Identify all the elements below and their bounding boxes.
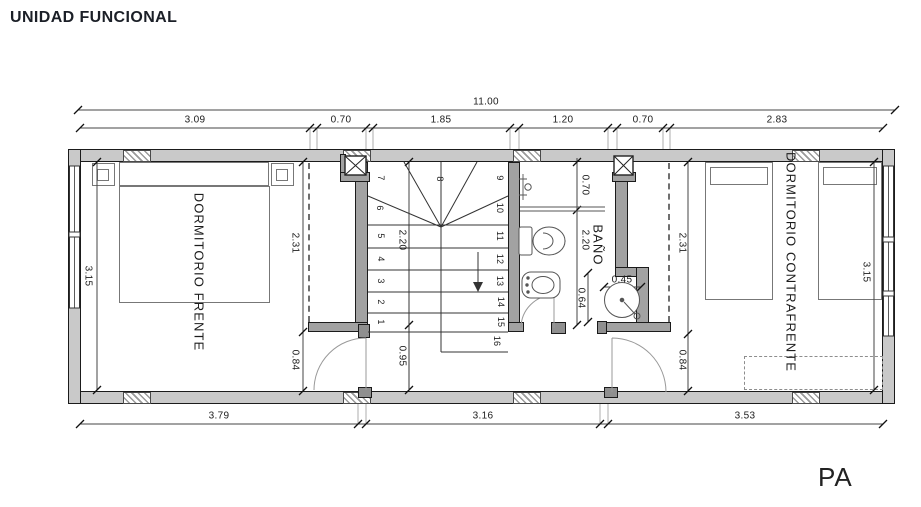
shower: [519, 174, 605, 211]
dim-front-closet: 2.31: [290, 233, 301, 254]
wall-exterior-left: [68, 149, 81, 404]
wall-hatch: [513, 150, 541, 162]
stair-step-number: 10: [495, 203, 505, 214]
dim-top-segment: 1.20: [553, 115, 574, 126]
dim-top-segment: 1.85: [431, 115, 452, 126]
wall-bath-west: [508, 162, 520, 332]
wall-vanity-east: [636, 267, 649, 324]
round-sink: [605, 283, 641, 320]
dim-sink-diameter: 0.45: [612, 275, 633, 286]
stair-step-number: 8: [435, 176, 445, 181]
stair-step-number: 12: [495, 254, 505, 265]
wall-hatch: [123, 392, 151, 404]
closet-front-line: [308, 163, 310, 322]
stair-direction-arrow: [473, 252, 483, 292]
dim-top-segment: 2.83: [767, 115, 788, 126]
closet-outline: [744, 356, 883, 390]
wall-bath-south: [508, 322, 524, 332]
dim-top-segment: 0.70: [633, 115, 654, 126]
door-stop: [358, 387, 372, 398]
stair-step-number: 14: [496, 297, 506, 308]
room-label-bathroom: BAÑO: [591, 224, 606, 265]
nightstand-detail: [97, 169, 109, 181]
stair-step-number: 6: [375, 205, 385, 210]
bed-pillow: [823, 167, 877, 185]
stair-treads: [368, 162, 508, 390]
dim-top-segment: 3.09: [185, 115, 206, 126]
toilet: [519, 227, 566, 255]
stair-step-number: 13: [495, 276, 505, 287]
stair-step-number: 3: [376, 278, 386, 283]
wall-exterior-bottom: [68, 391, 895, 404]
stair-step-number: 2: [376, 299, 386, 304]
closet-front-line: [668, 163, 670, 322]
stair-step-number: 4: [376, 256, 386, 261]
dim-stair-run: 2.20: [397, 230, 408, 251]
door-jamb: [597, 321, 607, 334]
dim-bottom-segment: 3.16: [473, 411, 494, 422]
dim-left-height: 3.15: [83, 266, 94, 287]
dim-right-height: 3.15: [861, 262, 872, 283]
dim-front-door-zone: 0.84: [290, 350, 301, 371]
bed-pillow: [710, 167, 768, 185]
door-jamb: [551, 322, 566, 334]
wall-hatch: [792, 392, 820, 404]
dim-overall-width: 11.00: [473, 97, 499, 108]
door-hinge-block: [604, 387, 618, 398]
stair-step-number: 16: [492, 336, 502, 347]
room-label-back-bedroom: DORMITORIO CONTRAFRENTE: [784, 152, 799, 372]
wall-duct-bottom: [340, 172, 370, 182]
dim-bath-length: 2.20: [580, 230, 591, 251]
room-label-front-bedroom: DORMITORIO FRENTE: [192, 193, 207, 352]
stair-step-number: 15: [496, 317, 506, 328]
dim-landing: 0.95: [397, 346, 408, 367]
stair-step-number: 5: [376, 233, 386, 238]
wall-hatch: [123, 150, 151, 162]
door-jamb: [358, 324, 370, 338]
wall-hatch: [513, 392, 541, 404]
wall-vanity-south: [603, 322, 671, 332]
nightstand-detail: [276, 169, 288, 181]
wall-duct2-bottom: [612, 172, 636, 182]
stair-step-number: 11: [495, 231, 505, 241]
sheet-label: PA: [818, 462, 853, 493]
wall-exterior-top: [68, 149, 895, 162]
stair-step-number: 9: [495, 175, 505, 180]
dim-back-closet: 2.31: [677, 233, 688, 254]
dim-vanity-opening: 0.64: [576, 288, 587, 309]
stair-step-number: 1: [376, 319, 386, 324]
dim-shower: 0.70: [580, 175, 591, 196]
bed-headboard: [119, 162, 269, 186]
bidet: [522, 272, 560, 298]
wall-stair-west: [355, 162, 368, 332]
dim-back-door-zone: 0.84: [677, 350, 688, 371]
wall-exterior-right: [882, 149, 895, 404]
page-title: UNIDAD FUNCIONAL: [10, 9, 177, 27]
stair-step-number: 7: [376, 175, 386, 180]
wall-hatch: [343, 150, 371, 162]
dim-bottom-segment: 3.79: [209, 411, 230, 422]
floor-plan: UNIDAD FUNCIONAL: [0, 0, 921, 507]
dim-top-segment: 0.70: [331, 115, 352, 126]
dim-bottom-segment: 3.53: [735, 411, 756, 422]
